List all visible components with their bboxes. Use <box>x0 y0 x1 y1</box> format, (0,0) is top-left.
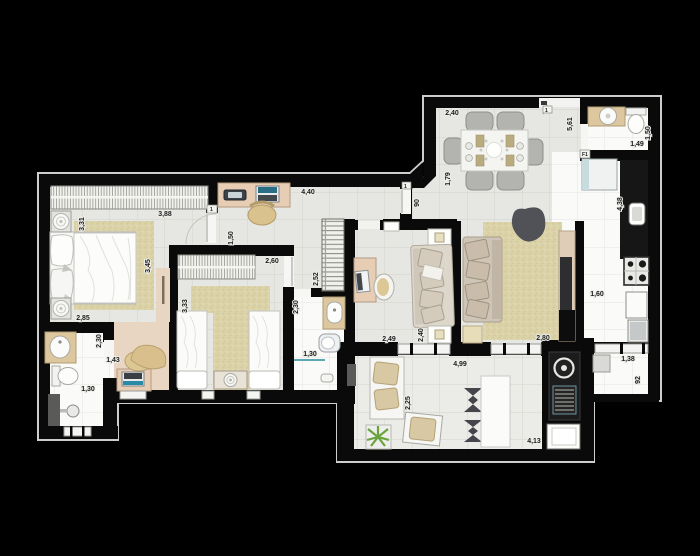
svg-text:3,45: 3,45 <box>145 259 152 273</box>
svg-text:4,99: 4,99 <box>453 361 467 368</box>
svg-text:1,38: 1,38 <box>621 356 635 363</box>
svg-text:2,85: 2,85 <box>76 315 90 322</box>
svg-text:3,88: 3,88 <box>158 211 172 218</box>
svg-text:3,33: 3,33 <box>182 299 189 313</box>
svg-text:2,30: 2,30 <box>96 334 103 348</box>
svg-text:2,60: 2,60 <box>265 258 279 265</box>
svg-text:1,79: 1,79 <box>445 172 452 186</box>
svg-text:2,30: 2,30 <box>293 300 300 314</box>
svg-text:2,40: 2,40 <box>445 110 459 117</box>
svg-text:1,49: 1,49 <box>630 141 644 148</box>
svg-text:F1: F1 <box>582 152 588 158</box>
svg-text:1,50: 1,50 <box>228 231 235 245</box>
svg-text:2,49: 2,49 <box>382 336 396 343</box>
svg-text:2,80: 2,80 <box>536 335 550 342</box>
svg-text:2,40: 2,40 <box>418 328 425 342</box>
svg-text:1,43: 1,43 <box>106 357 120 364</box>
svg-text:1,30: 1,30 <box>81 386 95 393</box>
svg-text:2,25: 2,25 <box>405 396 412 410</box>
svg-text:2,52: 2,52 <box>313 272 320 286</box>
svg-text:5,61: 5,61 <box>567 117 574 131</box>
svg-text:1,50: 1,50 <box>645 126 652 140</box>
svg-text:1,30: 1,30 <box>303 351 317 358</box>
svg-text:4,40: 4,40 <box>301 189 315 196</box>
svg-text:1: 1 <box>404 184 407 190</box>
svg-text:1: 1 <box>210 207 213 213</box>
svg-text:1: 1 <box>545 108 548 114</box>
svg-text:1,60: 1,60 <box>590 291 604 298</box>
svg-text:4,38: 4,38 <box>617 197 624 211</box>
svg-text:4,13: 4,13 <box>527 438 541 445</box>
svg-text:3,31: 3,31 <box>79 217 86 231</box>
svg-text:92: 92 <box>635 376 642 384</box>
svg-text:90: 90 <box>414 199 421 207</box>
